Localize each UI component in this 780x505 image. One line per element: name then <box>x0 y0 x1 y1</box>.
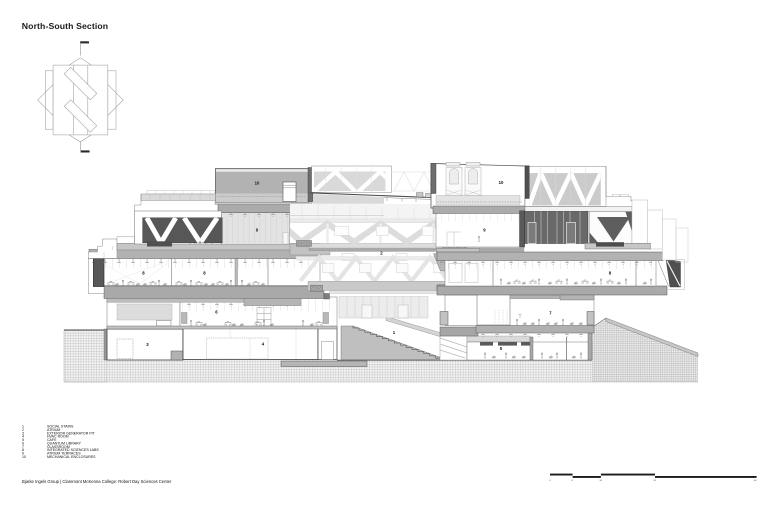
svg-text:10: 10 <box>499 180 504 185</box>
svg-text:10: 10 <box>22 455 26 459</box>
svg-text:Bjarke Ingels Group | Claremon: Bjarke Ingels Group | Claremont McKenna … <box>22 479 172 484</box>
svg-text:North-South Section: North-South Section <box>22 21 108 31</box>
svg-text:10: 10 <box>255 180 260 185</box>
svg-text:MECHANICAL ENCLOSURES: MECHANICAL ENCLOSURES <box>47 455 96 459</box>
